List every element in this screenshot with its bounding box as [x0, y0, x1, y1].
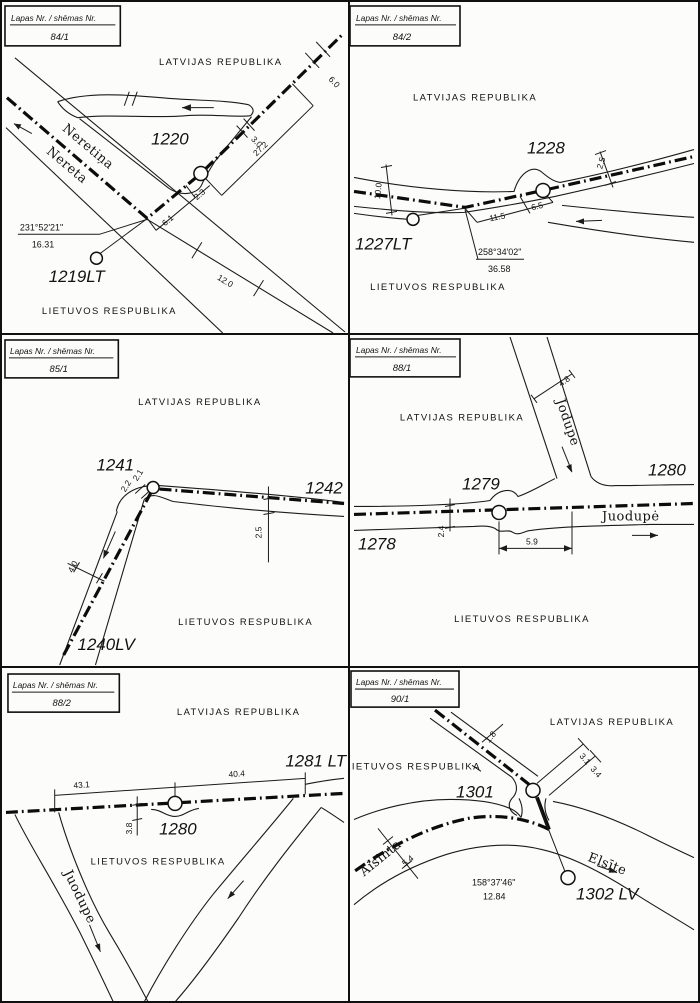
dimension-line [531, 370, 575, 403]
oxbow-channel-line [58, 95, 249, 105]
scheme-drawing-84-1: 231°52'21" 16.31 Lapas Nr. / shēmas Nr. … [2, 2, 348, 333]
flow-arrow [182, 104, 214, 111]
sheet-number: 90/1 [391, 694, 409, 705]
river-bank-line [354, 164, 694, 213]
boundary-marker-1280 [168, 796, 182, 810]
state-border-line [354, 157, 694, 208]
country-label-lithuania: LIETUVOS RESPUBLIKA [91, 857, 226, 868]
channel-break-marks [124, 92, 137, 106]
dimension-lines [68, 485, 275, 584]
flow-arrow-head [566, 464, 572, 472]
marker-label-1280: 1280 [648, 461, 686, 480]
river-bank-lines [15, 778, 344, 1001]
flow-arrow [228, 881, 244, 899]
country-label-lithuania: LIETUVOS RESPUBLIKA [370, 282, 506, 293]
title-box-label: Lapas Nr. / shēmas Nr. [10, 346, 95, 356]
marker-label-1240LV: 1240LV [78, 635, 137, 654]
distance-label: 16.31 [32, 239, 54, 249]
dimension-label: 43.1 [73, 779, 90, 790]
azimuth-label: 158°37'46" [472, 878, 515, 888]
country-label-latvia: LATVIJAS REPUBLIKA [550, 717, 674, 728]
river-bank-line [354, 213, 408, 219]
dimension-label: 2.4 [436, 525, 446, 537]
river-bank-line [354, 524, 694, 533]
river-bank-lines [354, 150, 694, 243]
river-bank-line [175, 807, 321, 1001]
country-label-lithuania: LIETUVOS RESPUBLIKA [350, 761, 481, 772]
dimension-line [147, 84, 313, 231]
dimension-arrow [499, 545, 507, 551]
scheme-drawing-88-2: Lapas Nr. / shēmas Nr. 88/2 LATVIJAS REP… [2, 668, 348, 1001]
azimuth-label: 231°52'21" [20, 222, 63, 232]
boundary-marker-1220 [194, 167, 208, 181]
country-label-lithuania: LIETUVOS RESPUBLIKA [178, 617, 313, 628]
dimension-label: 5.4 [400, 853, 416, 868]
river-bank-line [562, 205, 694, 217]
leader-line [100, 219, 146, 253]
river-bank-line [15, 814, 113, 1001]
title-box: Lapas Nr. / shēmas Nr. 84/1 [5, 6, 120, 46]
dimension-label: 6.0 [327, 74, 343, 90]
river-label-aisinta: Aisinta [356, 837, 404, 880]
country-label-lithuania: LIETUVOS RESPUBLIKA [42, 306, 177, 317]
title-box: Lapas Nr. / shēmas Nr. 85/1 [5, 340, 118, 378]
scheme-drawing-90-1: Lapas Nr. / shēmas Nr. 90/1 LATVIJAS REP… [350, 668, 698, 1001]
marker-label-1301: 1301 [456, 782, 494, 801]
country-label-latvia: LATVIJAS REPUBLIKA [413, 93, 537, 104]
marker-label-1279: 1279 [462, 475, 500, 494]
dimension-tick [305, 42, 330, 68]
river-bank-line [59, 812, 148, 1001]
oxbow-channel-cap [249, 105, 254, 116]
flow-arrow-head [95, 943, 101, 952]
boundary-marker-1301 [526, 783, 540, 797]
oxbow-channel-cap [58, 102, 78, 118]
dimension-label: 3.1 [577, 751, 592, 767]
scheme-drawing-84-2: 258°34'02" 36.58 Lapas Nr. / shēmas Nr. … [350, 2, 698, 333]
dimension-label: 11.5 [488, 210, 506, 223]
flow-arrow-head [650, 532, 658, 538]
flow-arrow [576, 218, 602, 224]
dimension-line [445, 499, 455, 532]
marker-label-1241: 1241 [96, 456, 134, 475]
title-box-label: Lapas Nr. / shēmas Nr. [11, 13, 96, 23]
marker-label-1242: 1242 [305, 479, 343, 498]
state-border-line [435, 710, 529, 784]
scheme-panel-88-2: Lapas Nr. / shēmas Nr. 88/2 LATVIJAS REP… [2, 668, 350, 1001]
dimension-label: 10.0 [372, 182, 384, 200]
dimension-label: 3.8 [124, 822, 134, 834]
flow-arrow-head [103, 550, 109, 559]
dimension-label: 5.9 [526, 536, 538, 546]
dimension-line [263, 487, 274, 563]
river-bank-line [510, 337, 557, 479]
title-box: Lapas Nr. / shēmas Nr. 88/2 [8, 674, 119, 712]
boundary-marker-1279 [492, 505, 506, 519]
border-demarcation-sheet: 231°52'21" 16.31 Lapas Nr. / shēmas Nr. … [0, 0, 700, 1003]
title-box: Lapas Nr. / shēmas Nr. 84/2 [350, 6, 460, 46]
dimension-line [381, 165, 397, 216]
river-label-juodupe: Juodupė [600, 509, 660, 524]
scheme-panel-84-1: 231°52'21" 16.31 Lapas Nr. / shēmas Nr. … [2, 2, 350, 335]
river-bank-line [305, 778, 344, 784]
distance-label: 12.84 [483, 892, 505, 902]
river-label-elsite: Elsīte [586, 850, 629, 879]
marker-label-1220: 1220 [151, 130, 189, 149]
sheet-number: 84/1 [50, 32, 68, 43]
marker-label-1228: 1228 [527, 139, 565, 158]
title-box-label: Lapas Nr. / shēmas Nr. [356, 677, 442, 687]
title-box-label: Lapas Nr. / shēmas Nr. [13, 680, 98, 690]
country-label-lithuania: LIETUVOS RESPUBLIKA [454, 614, 590, 625]
country-label-latvia: LATVIJAS REPUBLIKA [138, 397, 261, 408]
marker-label-1281LT: 1281 LT [285, 751, 347, 770]
scheme-drawing-88-1: Lapas Nr. / shēmas Nr. 88/1 LATVIJAS REP… [350, 335, 698, 666]
marker-label-1278: 1278 [358, 534, 396, 553]
leader-line [536, 797, 565, 871]
distance-label: 36.58 [488, 264, 510, 274]
azimuth-label: 258°34'02" [478, 247, 521, 257]
dimension-label: 40.4 [228, 768, 245, 779]
dimension-lines [147, 42, 330, 296]
sheet-number: 88/2 [52, 698, 71, 709]
sheet-number: 88/1 [393, 363, 411, 374]
boundary-marker-1302LV [561, 871, 575, 885]
river-bank-line [548, 222, 694, 242]
sheet-number: 85/1 [49, 364, 67, 375]
flow-arrow-head [182, 104, 191, 111]
river-label-juodupe: Juodupe [59, 866, 98, 926]
scheme-panel-85-1: Lapas Nr. / shēmas Nr. 85/1 LATVIJAS REP… [2, 335, 350, 668]
country-label-latvia: LATVIJAS REPUBLIKA [400, 413, 524, 424]
river-label-jodupe: Jodupe [552, 395, 583, 448]
dimension-line [499, 511, 572, 554]
flow-arrow-head [576, 218, 584, 224]
river-bank-line [321, 807, 344, 822]
title-box-label: Lapas Nr. / shēmas Nr. [356, 345, 442, 355]
scheme-panel-84-2: 258°34'02" 36.58 Lapas Nr. / shēmas Nr. … [350, 2, 698, 335]
boundary-marker-1219LT [90, 252, 102, 264]
river-bank-line [553, 801, 694, 857]
river-bank-line [354, 150, 694, 192]
river-bank-line [354, 479, 555, 507]
country-label-latvia: LATVIJAS REPUBLIKA [159, 57, 282, 68]
dimension-label: 1.8 [483, 729, 498, 745]
dimension-label: 2.5 [254, 526, 264, 538]
scheme-panel-88-1: Lapas Nr. / shēmas Nr. 88/1 LATVIJAS REP… [350, 335, 698, 668]
title-box: Lapas Nr. / shēmas Nr. 88/1 [350, 339, 460, 377]
dimension-label: 4.0 [66, 559, 80, 574]
marker-label-1227LT: 1227LT [355, 234, 413, 253]
marker-label-1219LT: 1219LT [49, 267, 107, 286]
marker-label-1280: 1280 [159, 819, 197, 838]
boundary-marker-1228 [536, 183, 550, 197]
dimension-label: 3.4 [588, 764, 603, 780]
flow-arrow [14, 124, 32, 134]
flow-arrow [632, 532, 658, 538]
dimension-label: 6.5 [530, 200, 544, 212]
oxbow-channel-line [78, 115, 251, 118]
sheet-number: 84/2 [393, 32, 412, 43]
country-label-latvia: LATVIJAS REPUBLIKA [177, 707, 300, 718]
river-bank-line [215, 117, 252, 162]
dimension-label: 12.0 [216, 272, 235, 289]
title-box-label: Lapas Nr. / shēmas Nr. [356, 13, 442, 23]
dimension-arrow [564, 545, 572, 551]
flow-arrow [89, 925, 100, 952]
scheme-panel-90-1: Lapas Nr. / shēmas Nr. 90/1 LATVIJAS REP… [350, 668, 698, 1001]
boundary-marker-1241 [147, 482, 159, 494]
flow-arrow [562, 447, 572, 473]
boundary-marker-1227LT [407, 213, 419, 225]
marker-label-1302LV: 1302 LV [576, 885, 640, 904]
scheme-drawing-85-1: Lapas Nr. / shēmas Nr. 85/1 LATVIJAS REP… [2, 335, 348, 666]
title-box: Lapas Nr. / shēmas Nr. 90/1 [351, 671, 459, 707]
